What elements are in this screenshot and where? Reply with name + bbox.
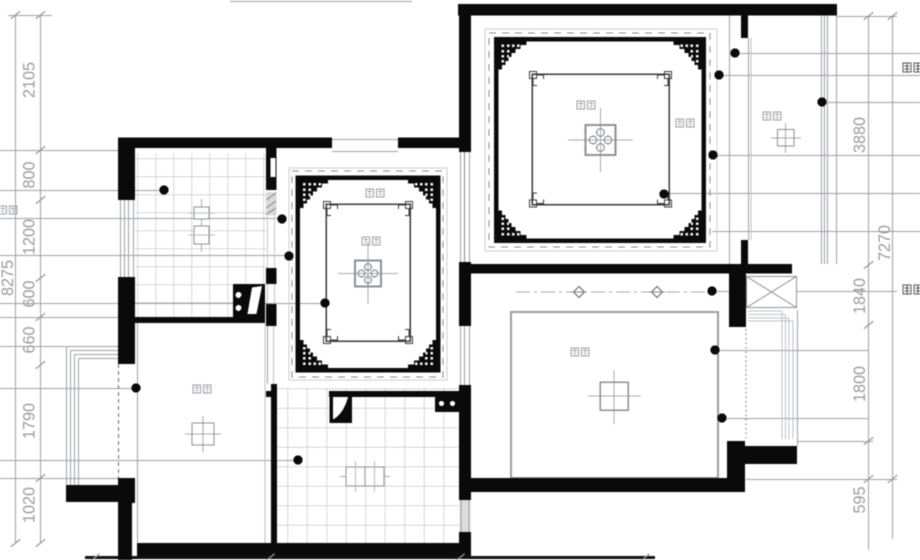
svg-text:1200: 1200: [21, 219, 39, 255]
svg-text:3880: 3880: [851, 117, 869, 153]
svg-text:600: 600: [21, 280, 39, 307]
svg-text:1800: 1800: [851, 366, 869, 402]
svg-text:1020: 1020: [21, 487, 39, 523]
svg-text:660: 660: [21, 326, 39, 353]
svg-text:800: 800: [21, 161, 39, 188]
svg-text:8275: 8275: [0, 260, 17, 296]
svg-text:7270: 7270: [876, 225, 894, 261]
svg-text:1840: 1840: [851, 278, 869, 314]
svg-text:595: 595: [851, 486, 869, 513]
svg-text:1790: 1790: [21, 403, 39, 439]
svg-text:2105: 2105: [21, 62, 39, 98]
